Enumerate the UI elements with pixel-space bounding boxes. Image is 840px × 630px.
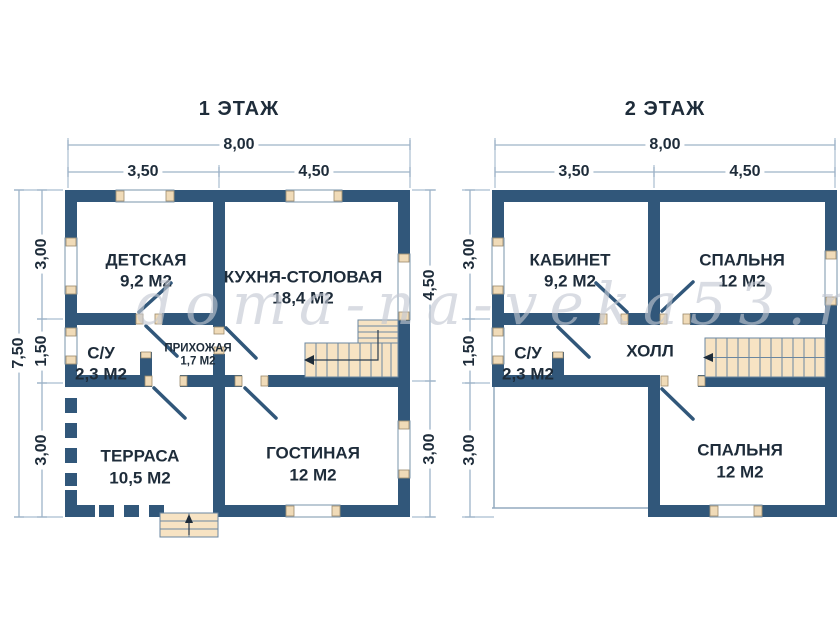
door-jamb [214,327,224,334]
floorplan-page: 1 ЭТАЖ 2 ЭТАЖ 8,00 3,50 4,50 7,50 3,00 1… [0,0,840,630]
dimension-label: 7,50 [11,333,27,372]
window [710,505,762,517]
door-jamb [600,314,607,324]
entry-steps [160,513,218,537]
window [398,421,410,478]
dimension-label: 3,00 [462,234,478,273]
dimension-label: 3,00 [34,430,50,469]
dimension-label: 8,00 [645,137,684,153]
door-jamb [683,314,690,324]
room-area-hallway: 1,7 М2 [180,356,215,368]
window [286,505,340,517]
floor2-plan [462,138,837,517]
wall [162,313,213,325]
wall [492,190,837,202]
wall [77,313,136,325]
room-area-bedroom2: 12 М2 [716,464,763,481]
room-label-kitchen: КУХНЯ-СТОЛОВАЯ [224,269,383,286]
dimension-label: 3,00 [422,429,438,468]
door-jamb [180,376,187,386]
door-jamb [235,376,242,386]
room-label-su2: С/У [514,345,542,362]
dimension-label: 1,50 [34,331,50,370]
window [65,328,77,364]
dimension-label: 4,50 [422,265,438,304]
room-area-su2: 2,3 М2 [502,366,554,383]
room-area-living: 12 М2 [289,467,336,484]
door-jamb [261,376,268,386]
door-jamb [621,314,628,324]
room-label-terrace: ТЕРРАСА [101,448,180,465]
room-label-hallway: ПРИХОЖАЯ [164,343,231,355]
dimension-label: 4,50 [294,164,333,180]
door-jamb [145,376,152,386]
floor2-title: 2 ЭТАЖ [625,99,705,119]
dimension-label: 3,00 [462,430,478,469]
room-label-hall: ХОЛЛ [626,343,674,360]
door-swing-line [154,388,185,418]
wall [213,354,225,505]
room-area-su1: 2,3 М2 [75,366,127,383]
dimension-label: 3,00 [34,234,50,273]
window [825,251,837,305]
wall [690,313,825,325]
dimension-label: 1,50 [462,331,478,370]
room-label-living: ГОСТИНАЯ [266,445,360,462]
staircase-floor1 [304,320,398,377]
door-swing-line [662,282,693,311]
door-jamb [553,352,563,358]
dimension-label: 8,00 [219,137,258,153]
window [398,254,410,320]
door-jamb [136,314,143,324]
floor1-title: 1 ЭТАЖ [199,99,279,119]
wall [648,375,660,505]
room-label-office: КАБИНЕТ [529,252,610,269]
door-jamb [141,352,151,358]
window [286,190,342,202]
staircase-floor2 [703,338,825,377]
dimension-label: 3,50 [123,164,162,180]
door-jamb [661,376,668,386]
lower-floor-outline [492,387,648,508]
wall [648,202,660,325]
window [492,328,504,364]
wall [65,505,95,517]
door-jamb [698,376,705,386]
room-area-bedroom1: 12 М2 [718,273,765,290]
dimension-label: 4,50 [725,164,764,180]
wall [504,313,600,325]
floorplan-drawing [0,0,840,630]
door-jamb [155,314,162,324]
door-swing-line [596,283,627,312]
room-label-bedroom1: СПАЛЬНЯ [699,252,785,269]
door-jamb [660,314,667,324]
wall [825,202,837,517]
room-area-detskaya: 9,2 М2 [120,273,172,290]
room-label-su1: С/У [87,345,115,362]
room-area-terrace: 10,5 М2 [109,470,170,487]
door-swing-line [662,389,693,419]
wall [213,202,225,327]
room-area-kitchen: 18,4 М2 [272,290,333,307]
room-label-bedroom2: СПАЛЬНЯ [697,442,783,459]
dimension-label: 3,50 [554,164,593,180]
window [65,238,77,294]
window [116,190,174,202]
room-area-office: 9,2 М2 [544,273,596,290]
door-swing-line [245,388,276,418]
wall [628,313,648,325]
floor1-plan [14,138,436,537]
window [492,238,504,294]
room-label-detskaya: ДЕТСКАЯ [106,252,187,269]
